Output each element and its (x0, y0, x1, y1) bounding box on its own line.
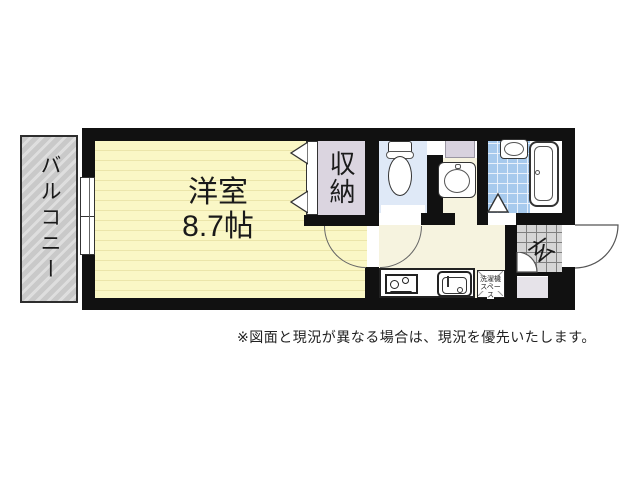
main-room-name: 洋室 (118, 176, 318, 210)
wall-right-upper (562, 128, 575, 225)
laundry-label-line1: 洗濯機 (480, 276, 501, 283)
wall-toilet-bottom (421, 213, 455, 225)
wall-entrance-step-right (548, 272, 562, 298)
closet-label: 収納 (323, 150, 360, 206)
wall-left-upper (82, 128, 95, 177)
wall-left-lower (82, 255, 95, 310)
floorplan: バルコニー 収納 玄 洋室 8.7帖 (0, 0, 640, 480)
washbasin-icon (438, 162, 476, 198)
wall-right-lower (562, 267, 575, 310)
bath-sink-bowl (504, 142, 524, 156)
kitchen-drain (457, 287, 463, 293)
laundry-space: 洗濯機 スペース (477, 270, 505, 298)
washbasin-faucet (455, 164, 461, 169)
wall-mainroom-door-side (365, 267, 379, 310)
stove-icon (385, 274, 418, 294)
disclaimer-note: ※図面と現況が異なる場合は、現況を優先いたします。 (237, 327, 596, 347)
stove-grill (390, 291, 412, 294)
laundry-label-line2: スペース (480, 284, 501, 299)
washbasin-bowl (444, 169, 470, 193)
window-sash-divider (81, 216, 94, 217)
window-frame-line (89, 178, 90, 254)
toilet-door-strip (381, 205, 425, 213)
kitchen-sink-basin (442, 277, 467, 294)
entrance-door-arc (575, 224, 621, 270)
main-room-label: 洋室 8.7帖 (118, 176, 318, 244)
stove-burner-1 (390, 280, 399, 289)
stove-burner-2 (402, 277, 409, 284)
kitchen-sink-icon (437, 271, 472, 297)
kitchen-counter (379, 268, 475, 298)
entrance-step-area (517, 277, 548, 298)
wall-closet-right (365, 128, 379, 226)
toilet-bowl-icon (388, 156, 412, 196)
bath-door-opening (488, 213, 516, 225)
balcony-area: バルコニー (20, 135, 78, 303)
main-room-size: 8.7帖 (118, 210, 318, 244)
bathtub-drain (535, 170, 540, 175)
kitchen-faucet (447, 276, 449, 287)
bath-folding-door-icon (486, 191, 510, 214)
laundry-label: 洗濯機 スペース (478, 276, 503, 300)
window (80, 177, 95, 255)
closet-area: 収納 (318, 140, 365, 216)
balcony-label: バルコニー (34, 154, 64, 284)
bathtub-icon (529, 141, 559, 207)
bath-sink-icon (500, 139, 528, 159)
entrance-inner-door-arc (516, 252, 539, 274)
